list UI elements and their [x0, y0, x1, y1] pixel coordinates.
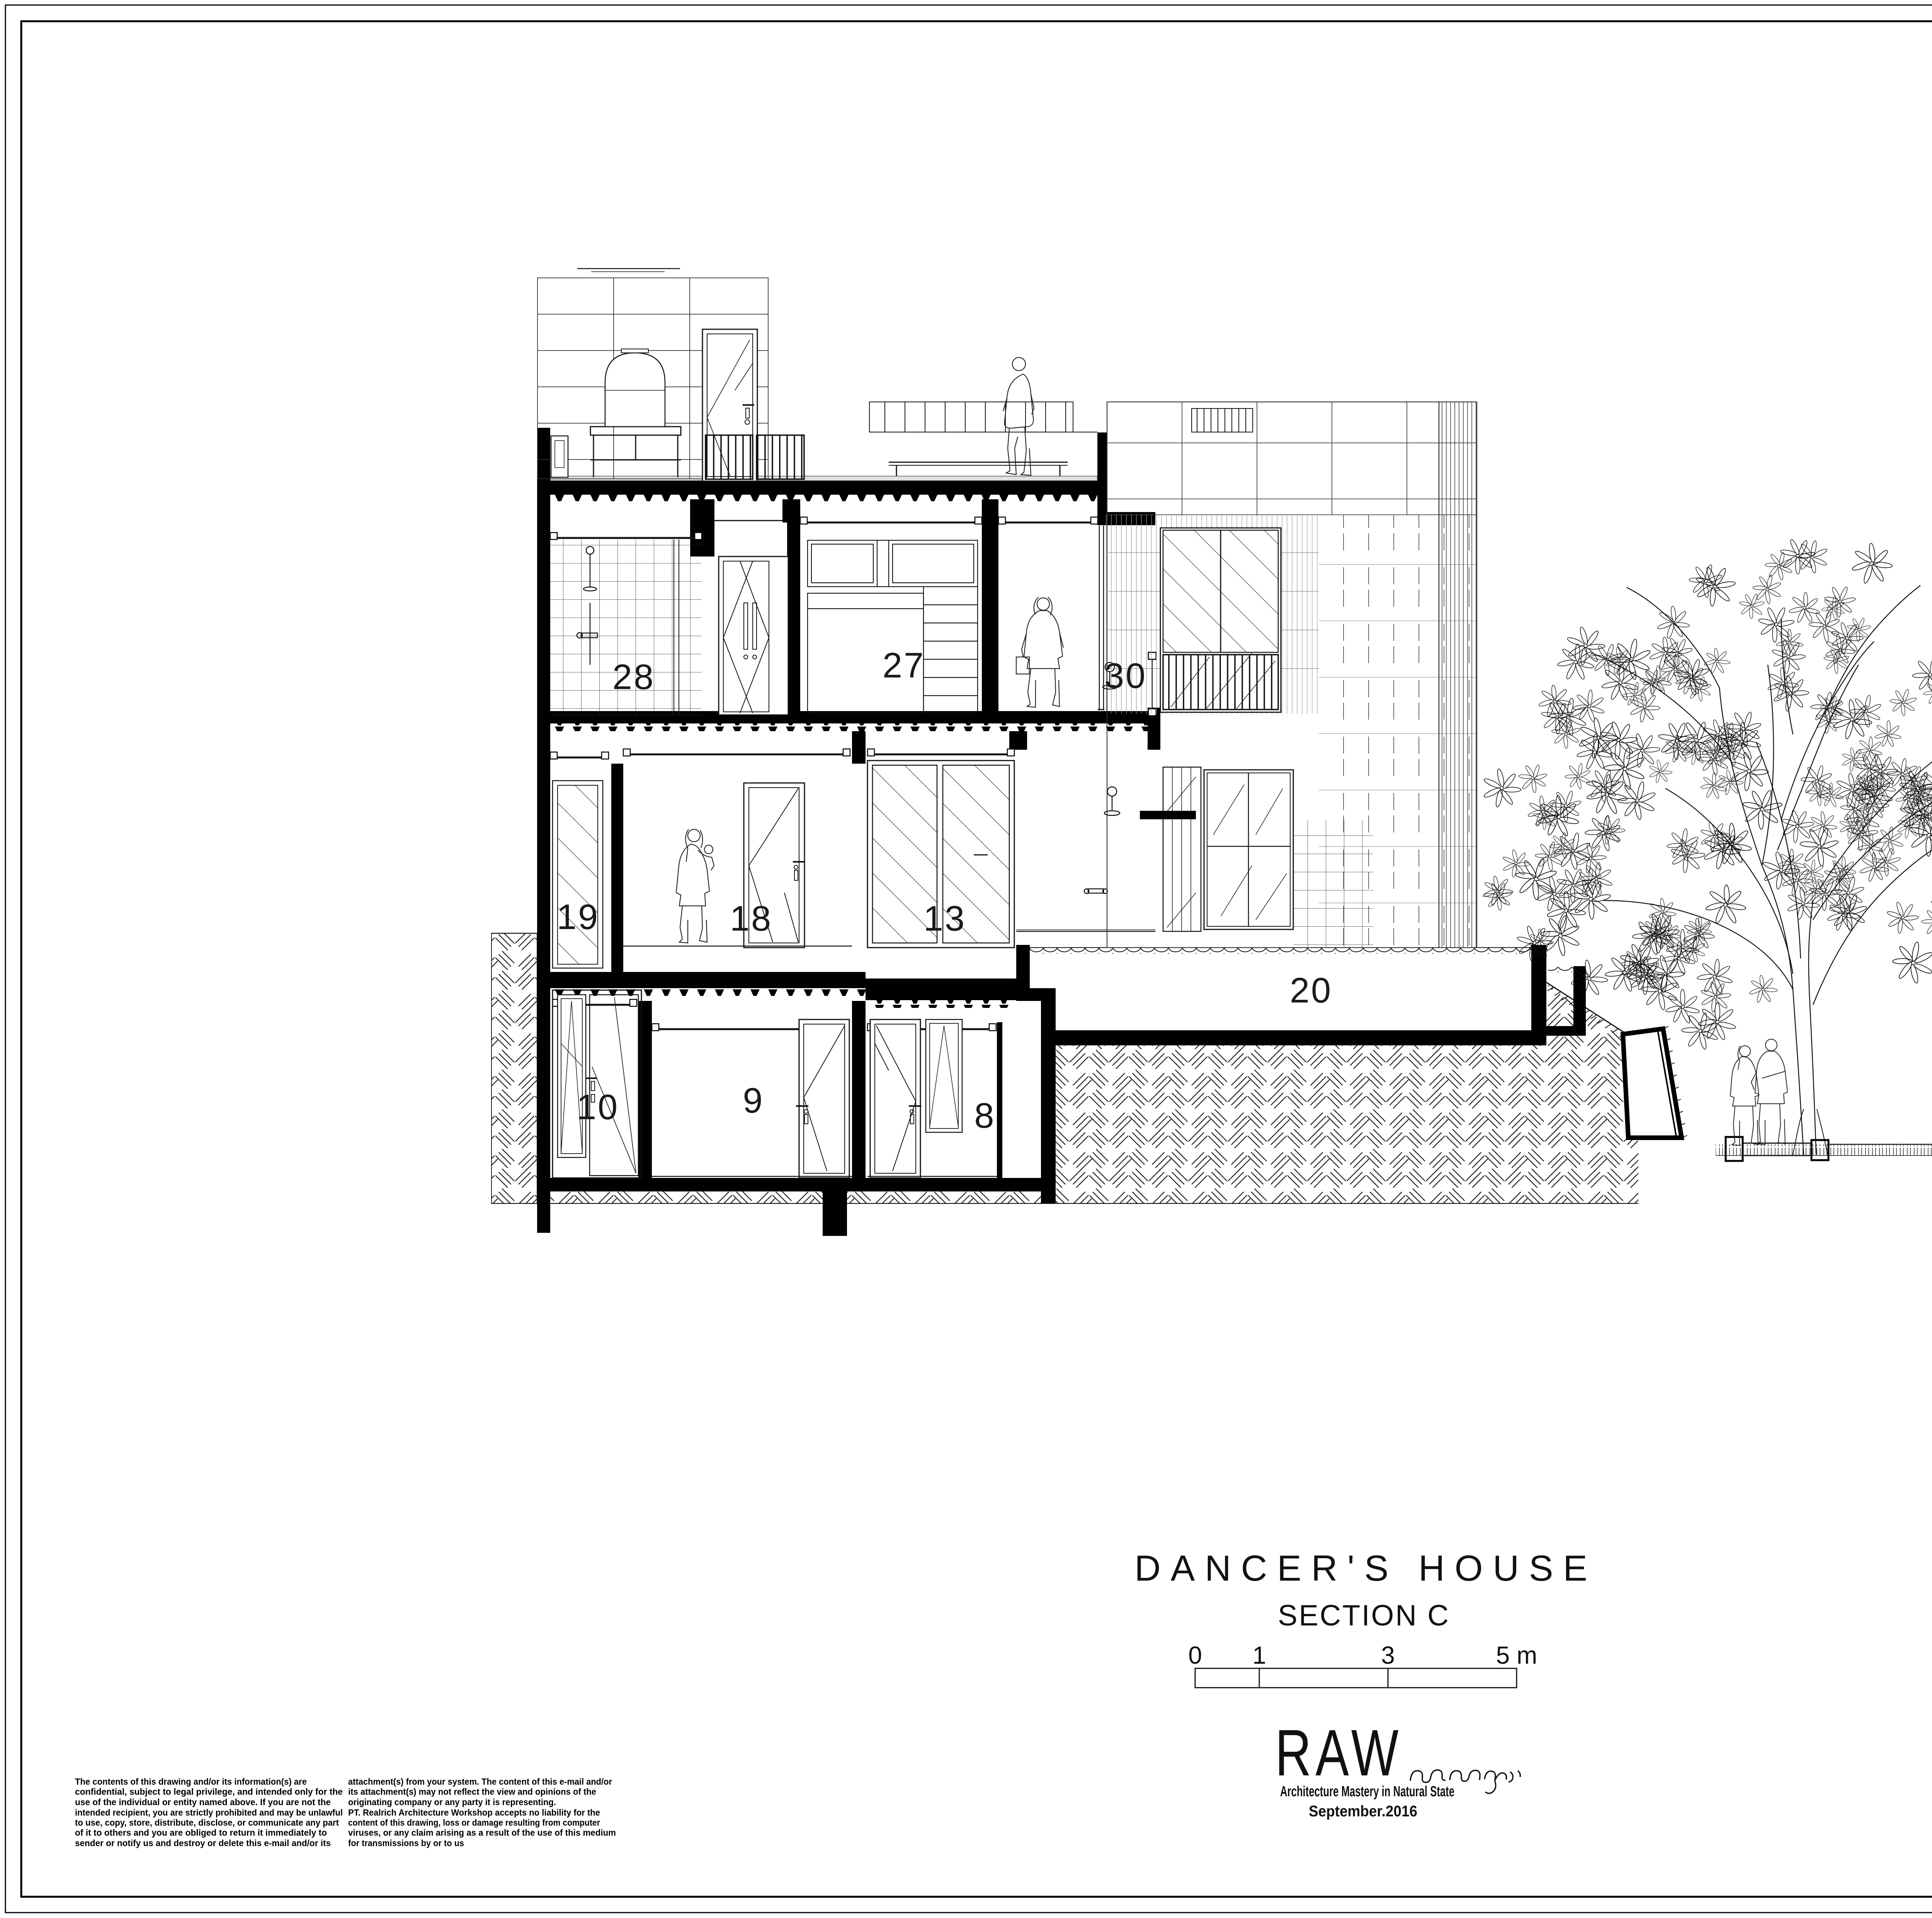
svg-text:3: 3 — [1381, 1641, 1395, 1669]
svg-text:5 m: 5 m — [1496, 1641, 1537, 1669]
svg-text:27: 27 — [883, 646, 925, 685]
svg-text:28: 28 — [612, 657, 655, 697]
svg-text:The contents of this drawing a: The contents of this drawing and/or its … — [75, 1777, 307, 1787]
svg-text:RAW: RAW — [1275, 1716, 1403, 1790]
svg-text:attachment(s) from your system: attachment(s) from your system. The cont… — [348, 1777, 612, 1787]
svg-text:of it to others and you are ob: of it to others and you are obliged to r… — [75, 1828, 327, 1838]
svg-text:use of the individual or entit: use of the individual or entity named ab… — [75, 1797, 331, 1807]
svg-text:30: 30 — [1104, 656, 1147, 696]
svg-text:Architecture Mastery in Natura: Architecture Mastery in Natural State — [1280, 1784, 1454, 1800]
svg-text:intended recipient, you are st: intended recipient, you are strictly pro… — [75, 1807, 343, 1818]
svg-text:September.2016: September.2016 — [1309, 1803, 1417, 1820]
svg-text:13: 13 — [923, 899, 966, 938]
svg-text:20: 20 — [1290, 971, 1332, 1010]
svg-text:8: 8 — [974, 1096, 995, 1135]
svg-text:for transmissions by or to us: for transmissions by or to us — [348, 1838, 464, 1848]
svg-text:19: 19 — [557, 897, 599, 937]
svg-text:0: 0 — [1188, 1641, 1202, 1669]
svg-text:SECTION C: SECTION C — [1278, 1599, 1459, 1632]
svg-text:10: 10 — [577, 1087, 619, 1127]
svg-text:its attachment(s) may not refl: its attachment(s) may not reflect the vi… — [348, 1787, 596, 1797]
svg-text:sender or notify us and destro: sender or notify us and destroy or delet… — [75, 1838, 331, 1848]
svg-text:confidential, subject to legal: confidential, subject to legal privilege… — [75, 1787, 343, 1797]
svg-text:18: 18 — [730, 899, 772, 938]
svg-text:DANCER'S HOUSE: DANCER'S HOUSE — [1134, 1548, 1601, 1588]
svg-text:PT. Realrich Architecture Work: PT. Realrich Architecture Workshop accep… — [348, 1807, 600, 1818]
svg-text:viruses, or any claim arising: viruses, or any claim arising as a resul… — [348, 1828, 616, 1838]
svg-text:content of this drawing, loss: content of this drawing, loss or damage … — [348, 1818, 600, 1828]
svg-text:to use, copy, store, distribut: to use, copy, store, distribute, disclos… — [75, 1818, 339, 1828]
svg-text:originating company or any par: originating company or any party it is r… — [348, 1797, 556, 1807]
svg-text:1: 1 — [1252, 1641, 1266, 1669]
svg-text:9: 9 — [743, 1081, 764, 1120]
